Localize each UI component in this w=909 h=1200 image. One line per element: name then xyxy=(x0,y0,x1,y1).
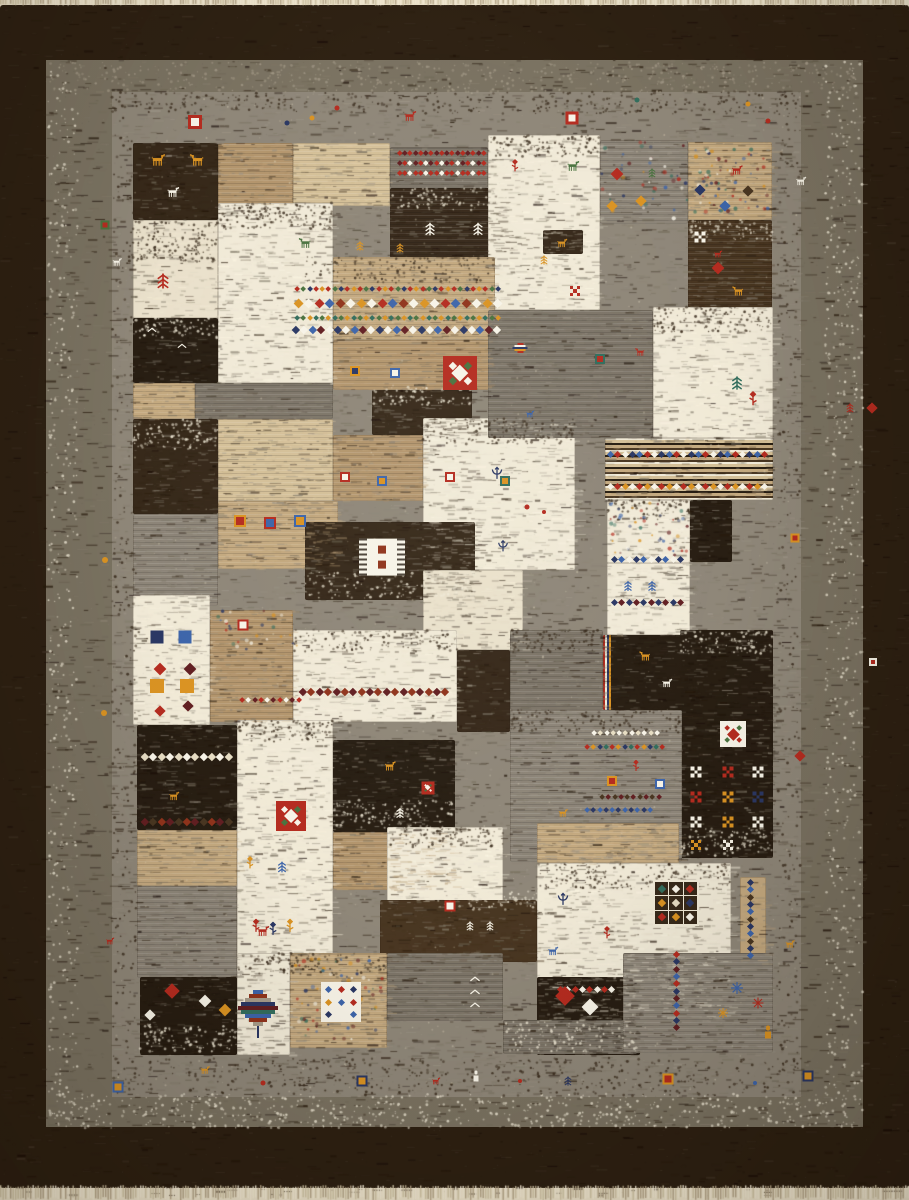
tree-motif xyxy=(471,221,486,237)
goat-motif xyxy=(732,286,744,296)
tree-motif xyxy=(729,375,745,392)
tree-motif xyxy=(539,254,550,266)
diamond-motif xyxy=(558,989,572,1003)
diamond-motif xyxy=(186,665,195,674)
flower-sprig-motif xyxy=(601,926,614,940)
dot-motif xyxy=(285,121,290,126)
window-motif xyxy=(445,901,456,912)
diamond-motif xyxy=(714,264,723,273)
diamond-motif xyxy=(721,202,729,210)
cross-stitch-x-motif xyxy=(691,840,701,850)
window-motif xyxy=(607,776,617,786)
window-motif xyxy=(340,472,350,482)
goat-motif xyxy=(299,237,312,248)
diamond-band-motif xyxy=(608,484,767,491)
cross-stitch-x-motif xyxy=(723,817,734,828)
square-motif xyxy=(179,631,192,644)
window-motif xyxy=(390,368,400,378)
dot-motif xyxy=(102,557,108,563)
goat-motif xyxy=(384,761,396,771)
chevron-motif xyxy=(470,989,481,995)
tree-motif xyxy=(563,1075,574,1087)
window-motif xyxy=(264,517,276,529)
goat-motif xyxy=(796,176,807,185)
dot-motif xyxy=(335,106,340,111)
window-motif xyxy=(101,221,110,230)
tree-motif xyxy=(276,860,289,874)
window-motif xyxy=(294,515,306,527)
window-motif xyxy=(803,1071,814,1082)
diamond-motif xyxy=(637,197,645,205)
diamond-band-motif xyxy=(295,315,500,321)
tree-motif xyxy=(465,920,476,932)
flower-sprig-motif xyxy=(266,922,280,937)
diamond-band-motif xyxy=(295,286,500,292)
diamond-band-motif xyxy=(600,794,661,800)
diamond-band-motif xyxy=(293,326,500,334)
diamond-band-motif xyxy=(398,151,485,156)
chevron-motif xyxy=(470,976,481,982)
flower-sprig-motif xyxy=(244,856,257,870)
dot-motif xyxy=(542,510,546,514)
cross-stitch-x-motif xyxy=(753,767,764,778)
flower-sprig-motif xyxy=(630,760,642,773)
branch-tree-motif xyxy=(497,539,510,553)
diamond-motif xyxy=(156,707,164,715)
tree-motif xyxy=(423,221,438,237)
goat-motif xyxy=(557,238,568,247)
window-motif xyxy=(791,534,800,543)
dot-motif xyxy=(746,102,751,107)
window-motif xyxy=(566,112,579,125)
person-motif xyxy=(765,1026,771,1039)
diamond-band-motif xyxy=(612,557,683,564)
window-motif xyxy=(188,115,202,129)
diamond-motif xyxy=(796,752,804,760)
rug-photo: Hand-knotted Gabbeh Loribaft patchwork w… xyxy=(0,0,909,1200)
gul-medallion-motif xyxy=(276,801,306,831)
window-motif xyxy=(350,366,360,376)
window-motif xyxy=(655,779,665,789)
chevron-motif xyxy=(177,344,187,349)
tree-motif xyxy=(622,580,634,593)
gul-medallion-motif xyxy=(422,782,435,795)
diamond-chain-motif xyxy=(674,952,681,1030)
diamond-motif xyxy=(613,170,622,179)
diamond-motif xyxy=(221,1006,230,1015)
flower-sprig-motif xyxy=(283,919,297,934)
goat-motif xyxy=(151,154,166,167)
goat-motif xyxy=(662,678,673,687)
diamond-band-motif xyxy=(300,688,448,696)
cross-stitch-x-motif xyxy=(570,286,580,296)
tree-motif xyxy=(845,402,856,414)
diamond-band-motif xyxy=(585,744,665,750)
window-motif xyxy=(234,515,246,527)
branch-tree-motif xyxy=(556,892,570,907)
goat-motif xyxy=(190,154,205,167)
gul-medallion-motif xyxy=(443,356,477,390)
dot-motif xyxy=(525,505,530,510)
diamond-band-motif xyxy=(398,161,485,166)
diamond-band-motif xyxy=(608,452,767,459)
goat-motif xyxy=(167,186,180,197)
cross-stitch-x-motif xyxy=(753,792,764,803)
diamond-motif xyxy=(156,665,165,674)
goat-motif xyxy=(731,165,743,175)
lozenge-tree-motif xyxy=(238,990,278,1038)
goat-motif xyxy=(567,160,580,171)
goat-motif xyxy=(112,258,122,267)
chevron-motif xyxy=(147,328,157,333)
goat-motif xyxy=(558,809,568,818)
diamond-motif xyxy=(201,997,210,1006)
tree-motif xyxy=(485,920,496,932)
striped-stack-motif xyxy=(513,343,528,353)
tree-motif xyxy=(647,167,658,179)
tree-motif xyxy=(395,242,406,254)
goat-motif xyxy=(635,348,645,357)
diamond-band-motif xyxy=(240,697,301,703)
cross-stitch-x-motif xyxy=(753,817,764,828)
snowflake-motif xyxy=(752,997,764,1010)
goat-motif xyxy=(548,946,559,955)
cross-stitch-x-motif xyxy=(691,792,702,803)
tree-motif xyxy=(355,240,366,252)
goat-motif xyxy=(106,937,115,945)
dot-motif xyxy=(261,1081,266,1086)
diamond-motif xyxy=(868,404,876,412)
cross-stitch-x-motif xyxy=(691,817,702,828)
checkerboard-gul-motif xyxy=(653,880,699,926)
cross-stitch-x-motif xyxy=(695,232,706,243)
window-motif xyxy=(113,1082,124,1093)
window-motif xyxy=(357,1076,368,1087)
diamond-band-motif xyxy=(398,171,485,176)
diamond-motif xyxy=(167,986,178,997)
chevron-motif xyxy=(470,1002,481,1008)
diamond-chain-motif xyxy=(748,880,755,958)
diamond-band-motif xyxy=(612,600,683,607)
window-motif xyxy=(445,472,455,482)
cross-stitch-x-motif xyxy=(723,767,734,778)
goat-motif xyxy=(200,1066,210,1075)
dot-motif xyxy=(518,1079,522,1083)
goat-motif xyxy=(432,1077,441,1085)
tree-motif xyxy=(646,580,658,593)
diamond-motif xyxy=(744,187,752,195)
diamond-motif xyxy=(146,1011,154,1019)
diamond-motif xyxy=(584,1001,596,1013)
dot-motif xyxy=(310,116,315,121)
dot-motif xyxy=(753,1081,757,1085)
goat-motif xyxy=(639,651,651,661)
flower-sprig-motif xyxy=(509,159,522,173)
gul-medallion-motif xyxy=(720,721,746,747)
window-motif xyxy=(377,476,387,486)
window-motif xyxy=(663,1074,674,1085)
cross-stitch-x-motif xyxy=(723,792,734,803)
tree-motif xyxy=(394,807,406,820)
dot-motif xyxy=(101,710,107,716)
goat-motif xyxy=(714,250,723,258)
diamond-motif xyxy=(608,202,616,210)
square-motif xyxy=(150,679,164,693)
window-motif xyxy=(595,354,605,364)
square-motif xyxy=(151,631,164,644)
diamond-band-motif xyxy=(295,299,501,309)
diamond-motif xyxy=(184,702,192,710)
diamond-motif xyxy=(696,186,704,194)
fringed-window-motif xyxy=(359,539,405,576)
diamond-band-motif xyxy=(142,753,232,761)
goat-motif xyxy=(526,410,535,418)
dot-motif xyxy=(766,119,771,124)
dotted-window-motif xyxy=(321,982,361,1022)
flower-sprig-motif xyxy=(249,919,263,934)
window-motif xyxy=(500,476,510,486)
goat-motif xyxy=(785,940,795,949)
dot-motif xyxy=(635,98,640,103)
diamond-band-motif xyxy=(592,730,659,736)
person-motif xyxy=(474,1071,479,1082)
window-motif xyxy=(238,620,249,631)
diamond-band-motif xyxy=(585,807,652,813)
snowflake-motif xyxy=(731,981,744,995)
goat-motif xyxy=(404,110,417,121)
motif-layer xyxy=(0,0,909,1200)
square-motif xyxy=(180,679,194,693)
tree-motif xyxy=(154,272,172,291)
snowflake-motif xyxy=(718,1007,729,1019)
flower-sprig-motif xyxy=(746,391,761,407)
window-motif xyxy=(869,658,877,666)
diamond-band-motif xyxy=(142,818,232,826)
cross-stitch-x-motif xyxy=(723,840,733,850)
goat-motif xyxy=(169,791,180,800)
cross-stitch-x-motif xyxy=(691,767,702,778)
